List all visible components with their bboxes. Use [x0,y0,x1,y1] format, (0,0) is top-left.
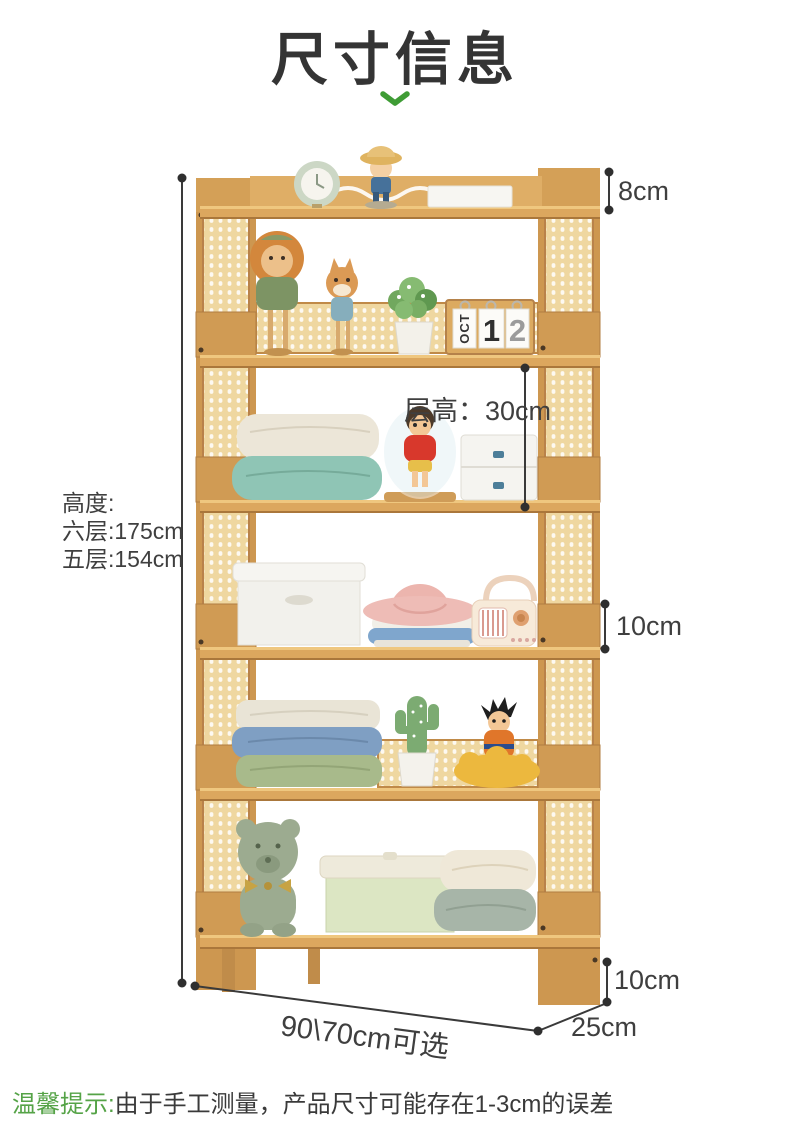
calendar-day-ones: 2 [509,313,526,348]
tier-height-label: 层高：30cm [404,397,551,425]
height-label: 高度: 六层:175cm 五层:154cm [62,489,183,573]
left-side-panel [196,178,256,990]
flip-calendar: OCT 1 2 [446,300,534,354]
footer-tip: 温馨提示:由于手工测量，产品尺寸可能存在1-3cm的误差 [12,1084,613,1119]
cactus-pot [395,696,439,786]
width-options-label: 90\70cm可选 [238,997,491,1072]
clock-figure [294,161,340,208]
white-box-top [428,186,512,207]
lion-figurine [250,231,304,356]
drawer-box [461,435,537,500]
height-six-tier: 六层:175cm [62,517,183,545]
rolled-towels [434,850,536,931]
right-side-panel [538,168,600,1005]
green-storage-box [320,852,460,932]
goku-on-cloud [454,697,540,788]
potted-plant [388,277,437,354]
tip-label: 温馨提示: [12,1091,115,1118]
calendar-month: OCT [457,313,472,343]
page-title: 尺寸信息 [0,14,790,96]
shelf-legs [222,948,320,992]
dimension-lines [178,168,614,1036]
tip-text: 由于手工测量，产品尺寸可能存在1-3cm的误差 [115,1091,614,1118]
folded-towels [232,414,382,500]
height-title: 高度: [62,489,183,517]
chevron-down-icon [379,91,411,109]
height-five-tier: 五层:154cm [62,545,183,573]
bear-figurine [236,819,300,937]
size-info-page: 尺寸信息 [0,0,790,1139]
side-rail-height-label: 10cm [616,612,682,640]
top-gap-label: 8cm [618,177,669,205]
calendar-day-tens: 1 [483,313,500,348]
top-rail [250,176,542,208]
fox-girl-figurine [326,258,358,356]
foot-height-label: 10cm [614,966,680,994]
back-rattan-strips [256,303,538,787]
storage-box-lidded [233,563,365,645]
retro-radio [472,578,536,646]
folded-clothes-stack [232,700,382,787]
shelf-boards [200,206,600,949]
depth-label: 25cm [571,1013,637,1041]
pink-hat-on-clothes [363,584,477,647]
straw-hat-figurine [360,146,402,209]
